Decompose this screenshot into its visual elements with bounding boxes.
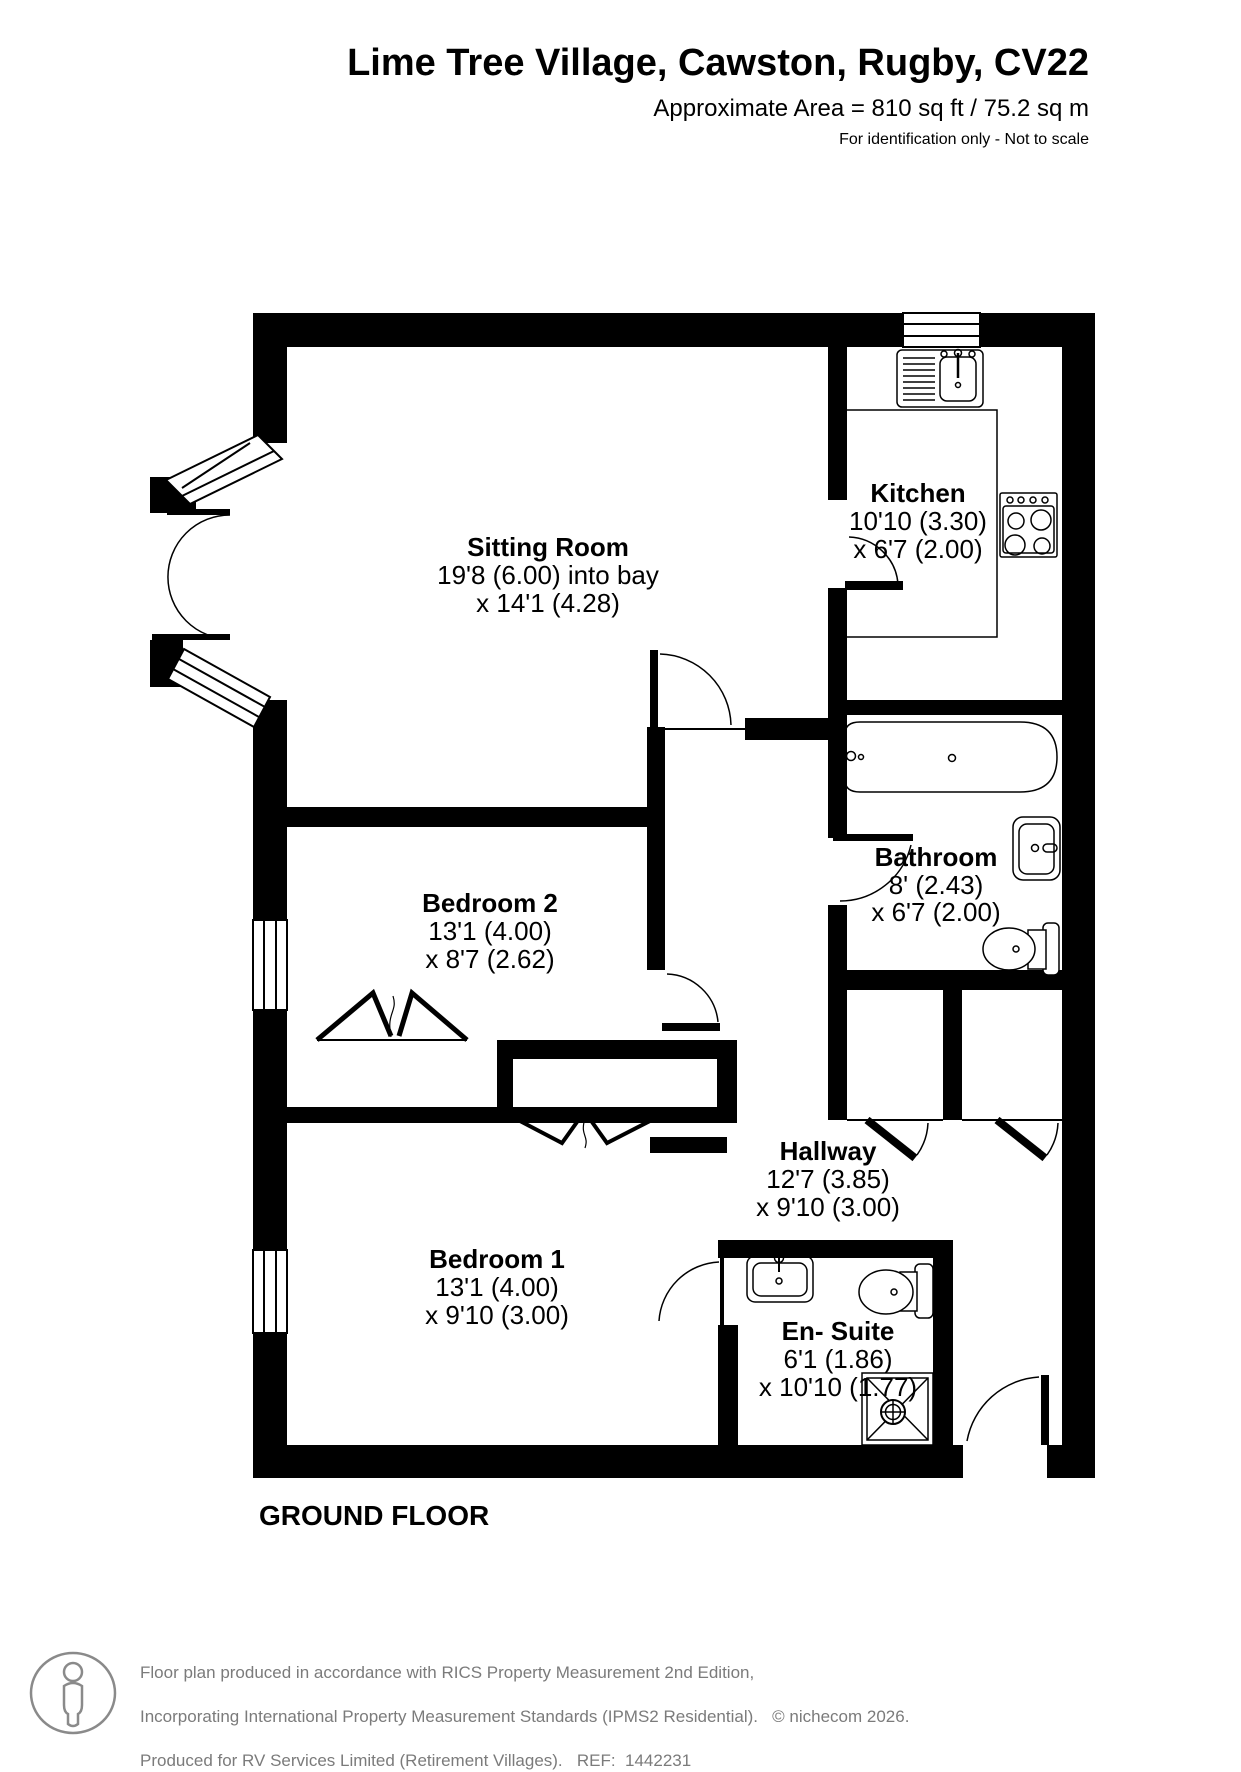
french-door-leaf-top	[167, 509, 230, 515]
room-dim1: 13'1 (4.00)	[435, 1272, 559, 1302]
room-dim1: 10'10 (3.30)	[849, 506, 987, 536]
wall-hall-v1	[828, 990, 847, 1120]
hob-icon	[1000, 493, 1057, 557]
disclaimer-line3: Produced for RV Services Limited (Retire…	[140, 1751, 691, 1770]
room-dim1: 19'8 (6.00) into bay	[437, 560, 659, 590]
room-dim2: x 6'7 (2.00)	[853, 534, 982, 564]
bedroom-2-window	[253, 920, 287, 1010]
wall-wardrobe1-top	[497, 1040, 737, 1059]
doors	[650, 537, 1062, 1445]
room-dim2: x 8'7 (2.62)	[425, 944, 554, 974]
en-suite-toilet-icon	[859, 1264, 933, 1318]
wall-bathroom-left-lower	[828, 905, 847, 970]
floor-plan: Sitting Room 19'8 (6.00) into bay x 14'1…	[0, 0, 1241, 1620]
wall-bottom	[253, 1445, 963, 1478]
wall-bathroom-bottom	[828, 970, 1062, 990]
room-dim1: 6'1 (1.86)	[783, 1344, 892, 1374]
wall-sitting-bedroom2	[287, 807, 647, 827]
room-name: Kitchen	[870, 478, 965, 508]
disclaimer: Floor plan produced in accordance with R…	[140, 1662, 909, 1772]
bathroom-sink-icon	[1013, 817, 1060, 880]
entrance-door	[967, 1375, 1049, 1445]
wall-left-upper	[253, 313, 287, 443]
wall-kitchen-lower	[828, 588, 847, 700]
wall-top-right	[980, 313, 1095, 347]
room-label-hallway: Hallway 12'7 (3.85) x 9'10 (3.00)	[756, 1136, 900, 1222]
bedroom-2-wardrobe-doors	[317, 993, 467, 1040]
wall-wardrobe-bottom	[287, 1107, 737, 1123]
wall-kitchen-bathroom	[845, 700, 1062, 715]
room-dim1: 12'7 (3.85)	[766, 1164, 890, 1194]
person-icon	[28, 1650, 118, 1736]
wall-kitchen-upper	[828, 347, 847, 500]
room-dim2: x 14'1 (4.28)	[476, 588, 620, 618]
kitchen-window	[903, 313, 980, 347]
room-dim2: x 10'10 (1.77)	[759, 1372, 917, 1402]
disclaimer-line1: Floor plan produced in accordance with R…	[140, 1663, 754, 1682]
wardrobes	[317, 993, 650, 1148]
wall-ensuite-top	[718, 1240, 953, 1258]
bedroom-1-wardrobe-doors	[520, 1121, 650, 1148]
en-suite-door	[659, 1258, 724, 1325]
floor-title: GROUND FLOOR	[259, 1500, 489, 1532]
room-name: Bedroom 2	[422, 888, 558, 918]
bay-french-doors	[152, 509, 230, 640]
wall-sitting-hall	[745, 718, 828, 740]
wall-jog	[647, 727, 665, 830]
en-suite-sink-icon	[747, 1252, 813, 1302]
wall-hall-v2	[943, 990, 962, 1120]
room-name: Bathroom	[875, 842, 998, 872]
room-dim2: x 9'10 (3.00)	[756, 1192, 900, 1222]
wall-right	[1062, 347, 1095, 1445]
bath-icon	[845, 722, 1057, 792]
wall-bedroom2-right	[647, 830, 665, 970]
wall-ensuite-left	[718, 1325, 738, 1445]
wall-top-left	[253, 313, 903, 347]
wall-bottom-right-stub	[1047, 1445, 1095, 1478]
room-name: Bedroom 1	[429, 1244, 565, 1274]
bedroom-2-door	[662, 974, 720, 1031]
room-dim1: 8' (2.43)	[889, 870, 984, 900]
disclaimer-line2: Incorporating International Property Mea…	[140, 1707, 909, 1726]
bay-window-lower	[168, 649, 270, 727]
wall-bedroom1-top-right	[650, 1137, 727, 1153]
bedroom-1-window	[253, 1250, 287, 1333]
french-door-arc	[168, 515, 230, 639]
bathroom-toilet-icon	[983, 923, 1059, 975]
wall-ensuite-right	[933, 1258, 953, 1445]
room-label-bathroom: Bathroom 8' (2.43) x 6'7 (2.00)	[871, 842, 1000, 927]
room-label-kitchen: Kitchen 10'10 (3.30) x 6'7 (2.00)	[849, 478, 987, 564]
room-label-en-suite: En- Suite 6'1 (1.86) x 10'10 (1.77)	[759, 1316, 917, 1402]
room-dim1: 13'1 (4.00)	[428, 916, 552, 946]
kitchen-sink-icon	[897, 350, 983, 408]
french-door-leaf-bottom	[152, 634, 230, 640]
room-label-bedroom-2: Bedroom 2 13'1 (4.00) x 8'7 (2.62)	[422, 888, 558, 974]
bay-window-upper	[166, 435, 282, 504]
wall-bathroom-left-upper	[828, 700, 847, 838]
room-dim2: x 6'7 (2.00)	[871, 897, 1000, 927]
room-name: En- Suite	[782, 1316, 895, 1346]
room-name: Hallway	[780, 1136, 877, 1166]
sitting-room-door	[650, 650, 745, 729]
room-label-sitting-room: Sitting Room 19'8 (6.00) into bay x 14'1…	[437, 532, 659, 618]
room-name: Sitting Room	[467, 532, 629, 562]
room-dim2: x 9'10 (3.00)	[425, 1300, 569, 1330]
room-label-bedroom-1: Bedroom 1 13'1 (4.00) x 9'10 (3.00)	[425, 1244, 569, 1330]
cupboard-door	[962, 1120, 1062, 1158]
